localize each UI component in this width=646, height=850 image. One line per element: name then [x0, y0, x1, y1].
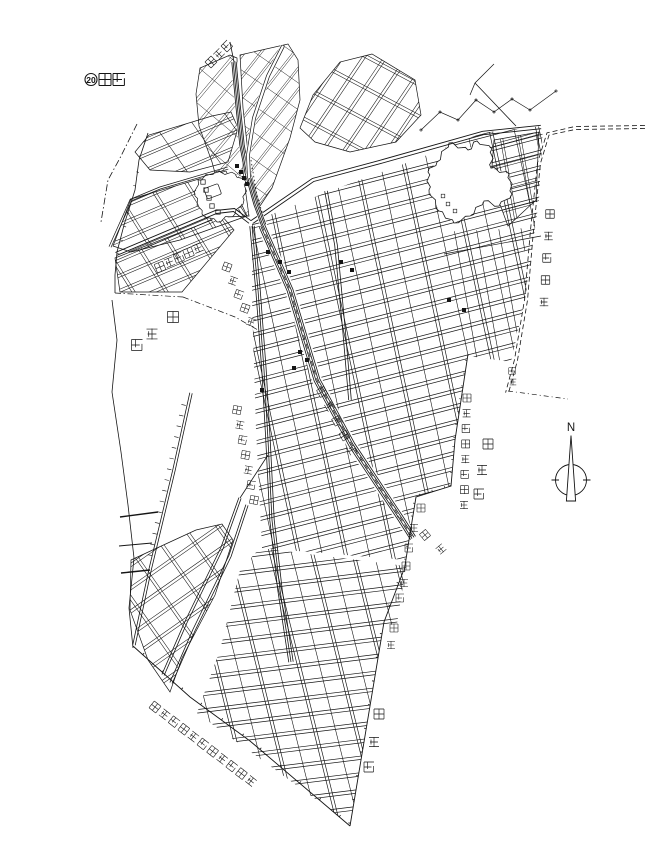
svg-text:20: 20	[86, 75, 96, 85]
svg-text:N: N	[567, 422, 575, 434]
